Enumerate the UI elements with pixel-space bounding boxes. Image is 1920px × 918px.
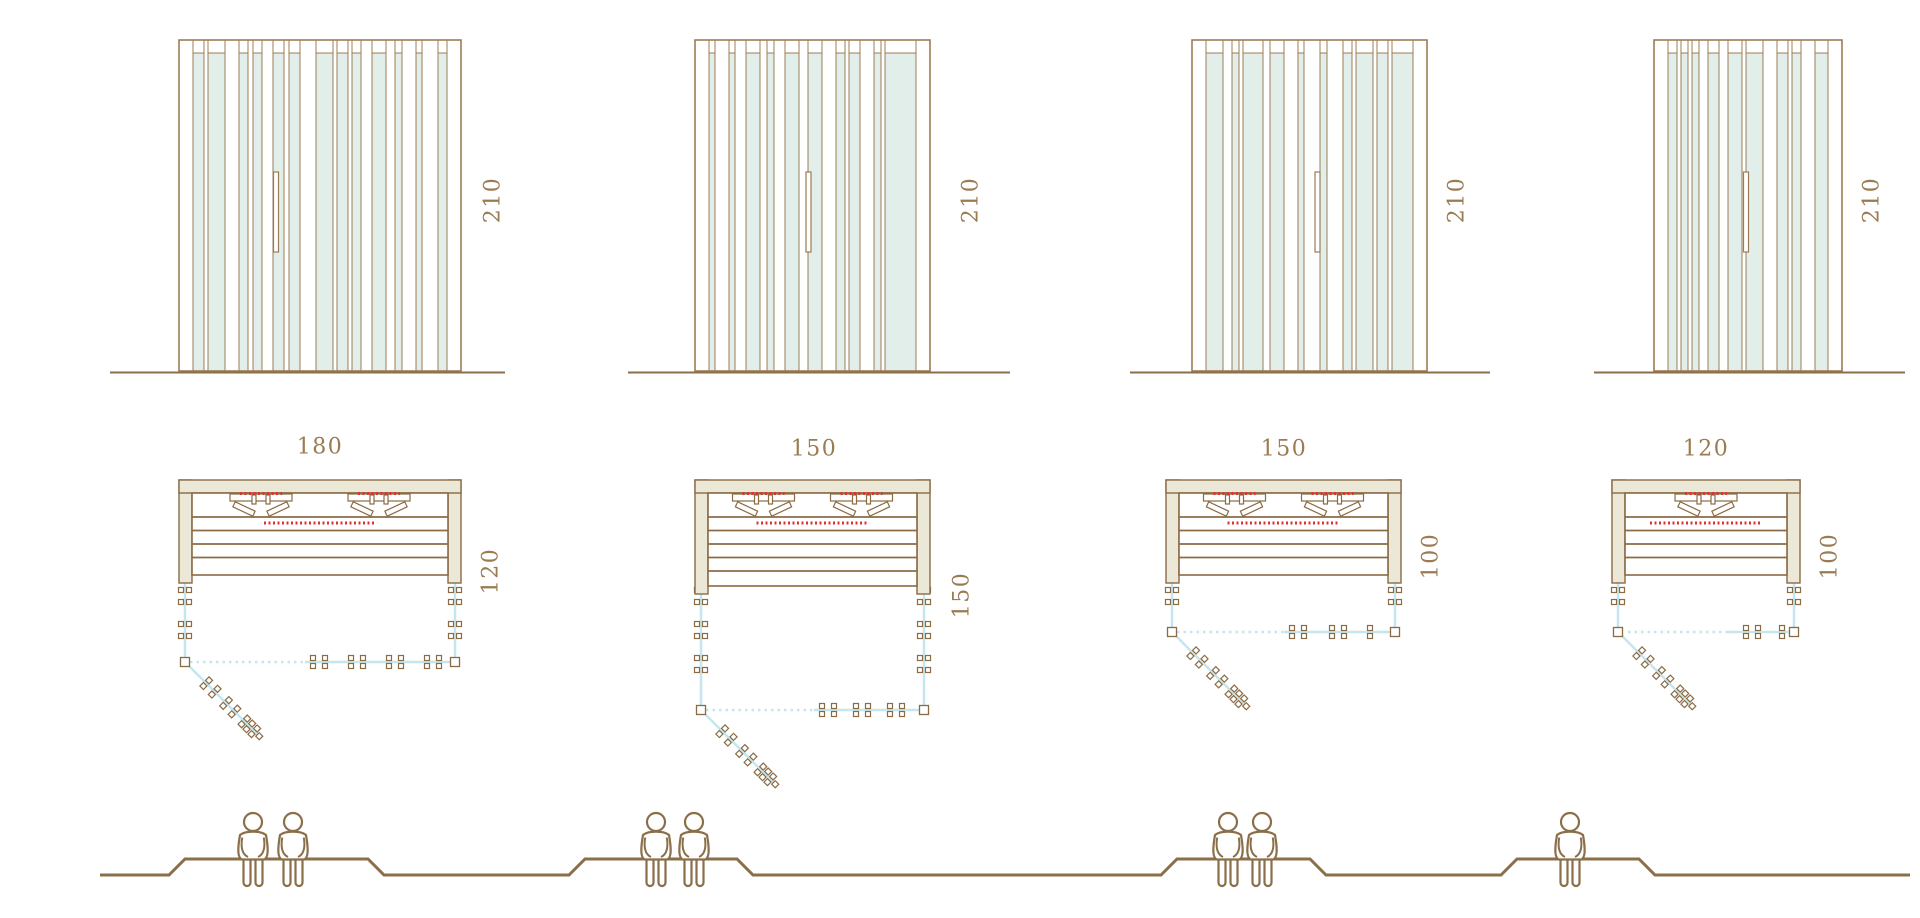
model-3-plan bbox=[1166, 480, 1402, 710]
plan-depth-label-2: 150 bbox=[950, 572, 975, 619]
bench bbox=[1166, 480, 1401, 583]
elevation-height-label-4: 210 bbox=[1860, 177, 1885, 224]
seated-person-figure bbox=[641, 813, 670, 886]
model-2-elevation bbox=[628, 40, 1010, 373]
plan-width-label-1: 180 bbox=[297, 435, 344, 460]
bench bbox=[179, 480, 461, 583]
seated-person-figure bbox=[679, 813, 708, 886]
seated-person-figure bbox=[1213, 813, 1242, 886]
glass-enclosure bbox=[695, 588, 931, 788]
plan-depth-label-1: 120 bbox=[479, 548, 504, 595]
model-4-plan bbox=[1612, 480, 1801, 710]
seated-person-figure bbox=[1555, 813, 1584, 886]
model-1-elevation bbox=[110, 40, 505, 373]
diagram-canvas: 180 150 150 120 120 150 100 100 210 210 … bbox=[0, 0, 1920, 918]
elevation-height-label-2: 210 bbox=[959, 177, 984, 224]
model-4-elevation bbox=[1594, 40, 1905, 373]
glass-enclosure bbox=[1612, 577, 1801, 710]
sauna-diagram bbox=[0, 0, 1920, 918]
plan-width-label-3: 150 bbox=[1261, 437, 1308, 462]
seated-person-figure bbox=[238, 813, 267, 886]
bench-ground-line bbox=[100, 859, 1910, 875]
plan-depth-label-3: 100 bbox=[1419, 533, 1444, 580]
bench bbox=[695, 480, 930, 594]
glass-enclosure bbox=[1166, 577, 1402, 710]
plan-width-label-4: 120 bbox=[1683, 437, 1730, 462]
plan-depth-label-4: 100 bbox=[1818, 533, 1843, 580]
elevation-height-label-1: 210 bbox=[481, 177, 506, 224]
plan-width-label-2: 150 bbox=[791, 437, 838, 462]
elevation-height-label-3: 210 bbox=[1445, 177, 1470, 224]
model-3-elevation bbox=[1130, 40, 1490, 373]
model-2-plan bbox=[695, 480, 931, 788]
model-1-plan bbox=[179, 480, 462, 740]
capacity-row bbox=[100, 813, 1910, 886]
seated-person-figure bbox=[278, 813, 307, 886]
bench bbox=[1612, 480, 1800, 583]
seated-person-figure bbox=[1247, 813, 1276, 886]
glass-enclosure bbox=[179, 577, 462, 740]
